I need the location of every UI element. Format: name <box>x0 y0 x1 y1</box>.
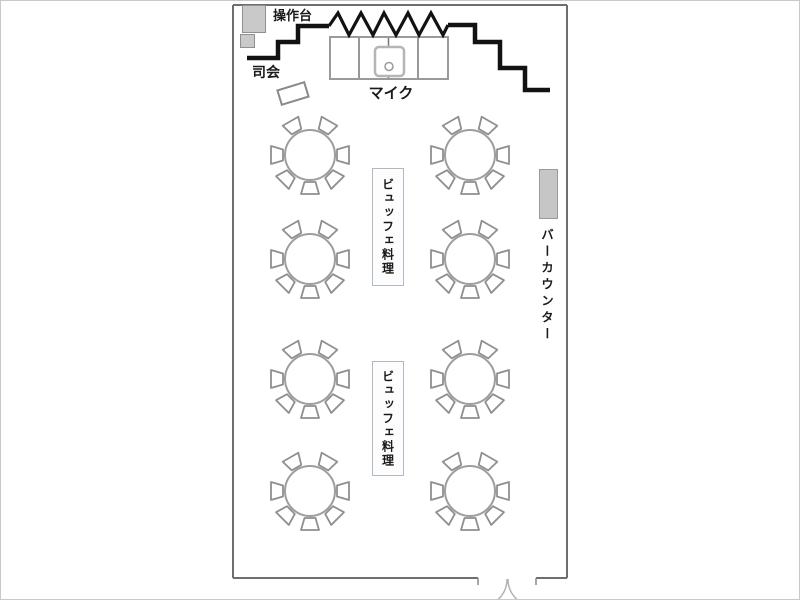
table-top <box>445 130 495 180</box>
table-top <box>285 234 335 284</box>
table-top <box>285 466 335 516</box>
door-swing-arcs <box>479 579 536 600</box>
chair <box>301 406 319 418</box>
bar-counter-label: バーカウンター <box>537 228 556 344</box>
chair <box>461 286 479 298</box>
stage-curtain-zigzag <box>329 13 448 35</box>
chair <box>301 182 319 194</box>
chair <box>461 182 479 194</box>
round-table <box>271 221 349 298</box>
chair <box>271 370 283 388</box>
chair <box>461 518 479 530</box>
chair <box>271 146 283 164</box>
bar-counter <box>539 169 558 219</box>
round-table <box>431 221 509 298</box>
chair <box>337 370 349 388</box>
chair <box>497 482 509 500</box>
chair <box>337 250 349 268</box>
chair <box>271 482 283 500</box>
chair <box>431 250 443 268</box>
round-table <box>431 117 509 194</box>
round-table <box>431 453 509 530</box>
mic-label: マイク <box>356 82 426 103</box>
floorplan-canvas: 操作台 司会 マイク ビュッフェ料理 ビュッフェ料理 バーカウンター <box>0 0 800 600</box>
chair <box>497 146 509 164</box>
mic-stand-box <box>375 47 404 76</box>
control-desk-unit <box>242 5 266 33</box>
chair <box>431 482 443 500</box>
chair <box>461 406 479 418</box>
control-desk-side-unit <box>240 34 255 48</box>
table-top <box>445 234 495 284</box>
chair <box>431 146 443 164</box>
chair <box>431 370 443 388</box>
buffet-table-1: ビュッフェ料理 <box>372 168 404 286</box>
table-top <box>285 130 335 180</box>
mic-icon <box>385 63 393 71</box>
buffet-table-2: ビュッフェ料理 <box>372 361 404 476</box>
table-top <box>445 466 495 516</box>
chair <box>337 482 349 500</box>
control-desk-label: 操作台 <box>273 5 312 24</box>
chair <box>301 286 319 298</box>
round-table <box>271 117 349 194</box>
buffet-table-1-label: ビュッフェ料理 <box>380 178 397 276</box>
table-top <box>445 354 495 404</box>
chair <box>497 250 509 268</box>
stage-steps-right <box>448 25 550 90</box>
chair <box>497 370 509 388</box>
mc-label: 司会 <box>252 62 280 82</box>
chair <box>271 250 283 268</box>
chair <box>337 146 349 164</box>
round-table <box>271 453 349 530</box>
chair <box>301 518 319 530</box>
round-table <box>431 341 509 418</box>
round-table <box>271 341 349 418</box>
table-top <box>285 354 335 404</box>
buffet-table-2-label: ビュッフェ料理 <box>380 370 397 468</box>
